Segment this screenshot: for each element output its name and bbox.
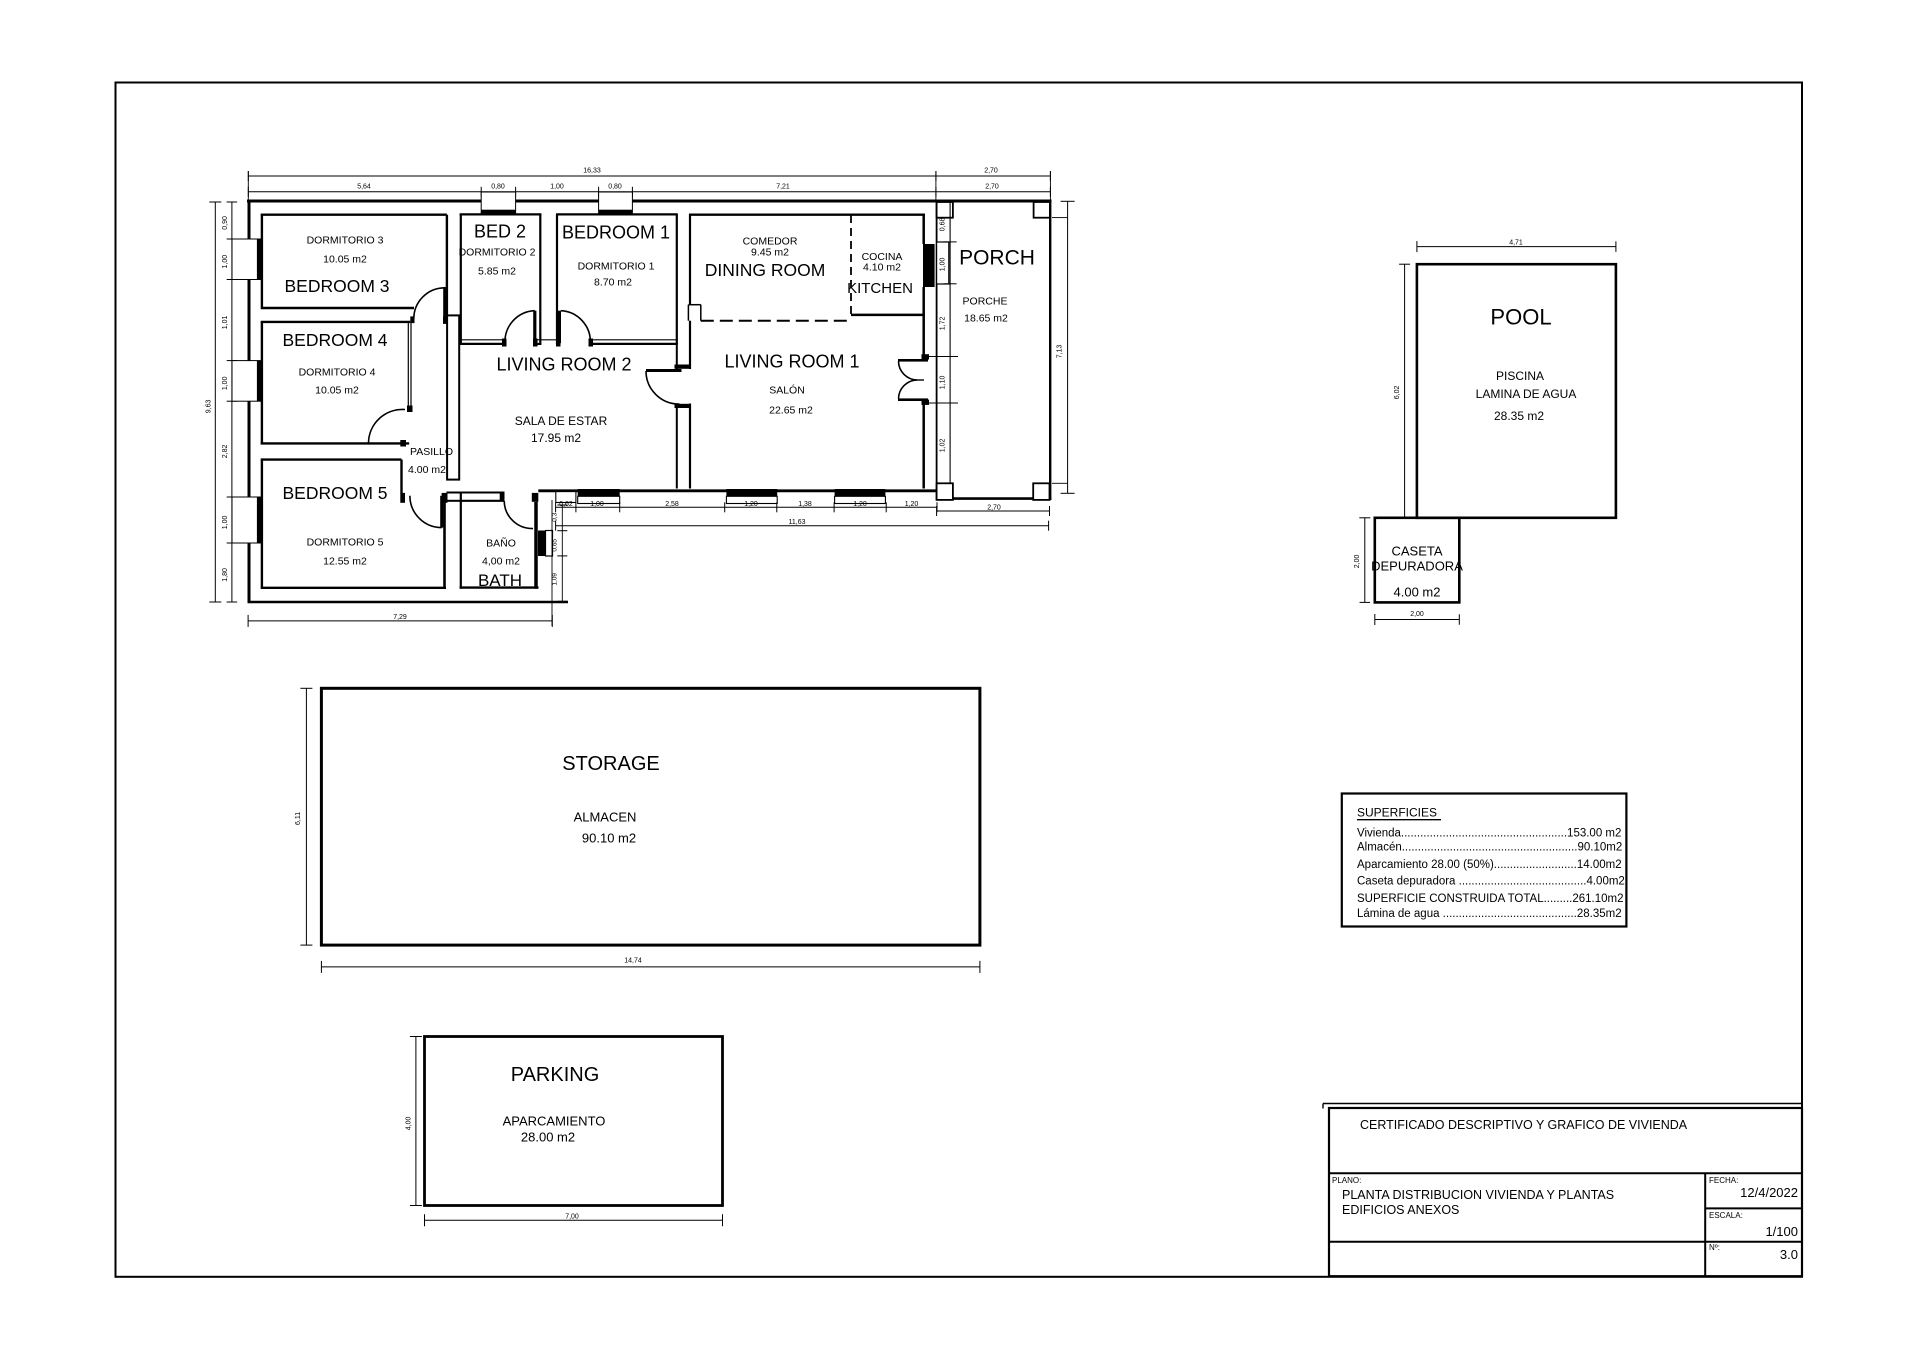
svg-text:CASETA: CASETA <box>1391 544 1442 559</box>
svg-text:BATH: BATH <box>478 571 522 590</box>
svg-text:Vivienda......................: Vivienda................................… <box>1357 828 1621 840</box>
svg-text:6,11: 6,11 <box>295 812 302 825</box>
svg-text:PASILLO: PASILLO <box>410 446 453 458</box>
svg-text:10.05 m2: 10.05 m2 <box>323 254 367 266</box>
svg-text:LIVING ROOM 1: LIVING ROOM 1 <box>724 351 859 371</box>
svg-text:1,02: 1,02 <box>940 439 947 453</box>
svg-text:2,70: 2,70 <box>987 504 1001 511</box>
svg-text:EDIFICIOS ANEXOS: EDIFICIOS ANEXOS <box>1342 1203 1459 1217</box>
svg-text:17.95 m2: 17.95 m2 <box>531 431 581 445</box>
svg-text:1,09: 1,09 <box>552 573 559 586</box>
svg-text:7,29: 7,29 <box>393 614 407 621</box>
svg-text:2,00: 2,00 <box>1354 555 1361 569</box>
svg-text:DORMITORIO 2: DORMITORIO 2 <box>459 247 536 259</box>
svg-text:DINING ROOM: DINING ROOM <box>705 260 826 280</box>
svg-text:DEPURADORA: DEPURADORA <box>1371 559 1463 574</box>
svg-text:SALA DE ESTAR: SALA DE ESTAR <box>515 414 608 428</box>
svg-text:2,82: 2,82 <box>222 445 229 459</box>
svg-text:1,00: 1,00 <box>940 258 947 272</box>
svg-text:2,58: 2,58 <box>665 501 679 508</box>
svg-text:1,38: 1,38 <box>798 501 812 508</box>
svg-text:4.00 m2: 4.00 m2 <box>408 464 446 476</box>
svg-text:1,72: 1,72 <box>940 317 947 331</box>
svg-text:0,65: 0,65 <box>552 539 559 552</box>
svg-text:22.65 m2: 22.65 m2 <box>769 405 813 417</box>
svg-text:DORMITORIO 5: DORMITORIO 5 <box>307 537 384 549</box>
svg-text:BEDROOM 3: BEDROOM 3 <box>284 276 389 296</box>
svg-text:1,00: 1,00 <box>222 255 229 269</box>
svg-text:1,20: 1,20 <box>744 501 758 508</box>
svg-text:90.10 m2: 90.10 m2 <box>582 831 636 846</box>
svg-text:0,3: 0,3 <box>552 512 559 521</box>
svg-text:LAMINA DE AGUA: LAMINA DE AGUA <box>1476 387 1577 401</box>
svg-text:Nº:: Nº: <box>1709 1243 1720 1252</box>
svg-text:12/4/2022: 12/4/2022 <box>1740 1185 1798 1200</box>
svg-text:DORMITORIO 4: DORMITORIO 4 <box>299 367 376 379</box>
svg-text:CERTIFICADO DESCRIPTIVO Y GRAF: CERTIFICADO DESCRIPTIVO Y GRAFICO DE VIV… <box>1360 1118 1688 1132</box>
svg-text:6,02: 6,02 <box>1394 386 1401 400</box>
svg-text:BEDROOM 1: BEDROOM 1 <box>562 222 670 242</box>
svg-text:SUPERFICIE CONSTRUIDA TOTAL...: SUPERFICIE CONSTRUIDA TOTAL.........261.… <box>1357 893 1624 905</box>
svg-text:2,00: 2,00 <box>1410 611 1424 618</box>
svg-text:STORAGE: STORAGE <box>562 753 659 775</box>
svg-text:BAÑO: BAÑO <box>486 537 516 550</box>
svg-text:28.35 m2: 28.35 m2 <box>1494 409 1544 423</box>
svg-text:1,00: 1,00 <box>222 376 229 390</box>
svg-text:DORMITORIO 1: DORMITORIO 1 <box>578 261 655 273</box>
svg-text:18.65 m2: 18.65 m2 <box>964 313 1008 325</box>
svg-text:1,80: 1,80 <box>222 568 229 582</box>
svg-text:0,68: 0,68 <box>940 218 947 232</box>
svg-text:ALMACEN: ALMACEN <box>574 810 637 825</box>
svg-text:Lámina de agua ..............: Lámina de agua .........................… <box>1357 908 1622 920</box>
svg-text:1,01: 1,01 <box>222 316 229 330</box>
svg-text:7,00: 7,00 <box>565 1213 579 1220</box>
svg-text:FECHA:: FECHA: <box>1709 1176 1738 1185</box>
svg-text:5.85 m2: 5.85 m2 <box>478 266 516 278</box>
svg-text:4.10 m2: 4.10 m2 <box>863 262 901 274</box>
svg-text:10.05 m2: 10.05 m2 <box>315 385 359 397</box>
svg-text:3.0: 3.0 <box>1780 1247 1798 1262</box>
svg-text:PISCINA: PISCINA <box>1496 369 1544 383</box>
svg-text:PLANTA DISTRIBUCION VIVIENDA Y: PLANTA DISTRIBUCION VIVIENDA Y PLANTAS <box>1342 1188 1614 1202</box>
svg-text:5,64: 5,64 <box>357 184 371 191</box>
svg-text:Caseta depuradora ...........: Caseta depuradora ......................… <box>1357 876 1625 888</box>
svg-text:POOL: POOL <box>1490 305 1551 330</box>
svg-text:1,10: 1,10 <box>940 376 947 390</box>
svg-text:2,70: 2,70 <box>985 184 999 191</box>
svg-text:PORCH: PORCH <box>959 246 1035 269</box>
svg-text:1,20: 1,20 <box>905 501 919 508</box>
svg-text:0,62: 0,62 <box>559 501 573 508</box>
svg-text:KITCHEN: KITCHEN <box>847 280 913 297</box>
svg-text:4,71: 4,71 <box>1509 239 1523 246</box>
svg-text:DORMITORIO 3: DORMITORIO 3 <box>307 235 384 247</box>
svg-text:1,00: 1,00 <box>222 516 229 530</box>
svg-text:12.55 m2: 12.55 m2 <box>323 556 367 568</box>
svg-text:APARCAMIENTO: APARCAMIENTO <box>503 1114 606 1129</box>
svg-text:1,20: 1,20 <box>853 501 867 508</box>
svg-text:PLANO:: PLANO: <box>1332 1176 1361 1185</box>
svg-text:0,80: 0,80 <box>491 184 505 191</box>
svg-text:9,63: 9,63 <box>206 400 213 414</box>
svg-text:4.00 m2: 4.00 m2 <box>1394 585 1441 600</box>
svg-text:BED 2: BED 2 <box>474 221 526 241</box>
svg-text:7,13: 7,13 <box>1057 345 1064 359</box>
svg-text:14,74: 14,74 <box>624 957 642 964</box>
svg-text:BEDROOM 5: BEDROOM 5 <box>282 483 387 503</box>
svg-text:11,63: 11,63 <box>789 519 806 526</box>
svg-text:9.45 m2: 9.45 m2 <box>751 247 789 259</box>
svg-text:28.00 m2: 28.00 m2 <box>521 1130 575 1145</box>
svg-text:BEDROOM 4: BEDROOM 4 <box>282 330 387 350</box>
svg-text:1/100: 1/100 <box>1765 1224 1798 1239</box>
svg-text:0,90: 0,90 <box>222 216 229 230</box>
svg-text:SUPERFICIES: SUPERFICIES <box>1357 806 1437 820</box>
svg-text:8.70 m2: 8.70 m2 <box>594 277 632 289</box>
svg-text:2,70: 2,70 <box>984 167 998 174</box>
svg-text:7,21: 7,21 <box>776 184 790 191</box>
svg-text:PORCHE: PORCHE <box>963 296 1008 308</box>
svg-text:1,00: 1,00 <box>550 184 564 191</box>
svg-text:SALÓN: SALÓN <box>769 384 805 397</box>
svg-text:4,00 m2: 4,00 m2 <box>482 556 520 568</box>
svg-text:4,00: 4,00 <box>406 1117 413 1131</box>
svg-text:Aparcamiento 28.00 (50%)......: Aparcamiento 28.00 (50%)................… <box>1357 859 1622 871</box>
svg-text:PARKING: PARKING <box>511 1064 600 1086</box>
svg-text:16,33: 16,33 <box>583 167 601 174</box>
svg-text:Almacén.......................: Almacén.................................… <box>1357 842 1622 854</box>
svg-text:1,00: 1,00 <box>590 501 604 508</box>
svg-text:0,80: 0,80 <box>608 184 622 191</box>
svg-text:ESCALA:: ESCALA: <box>1709 1211 1743 1220</box>
svg-text:LIVING ROOM 2: LIVING ROOM 2 <box>496 354 631 374</box>
